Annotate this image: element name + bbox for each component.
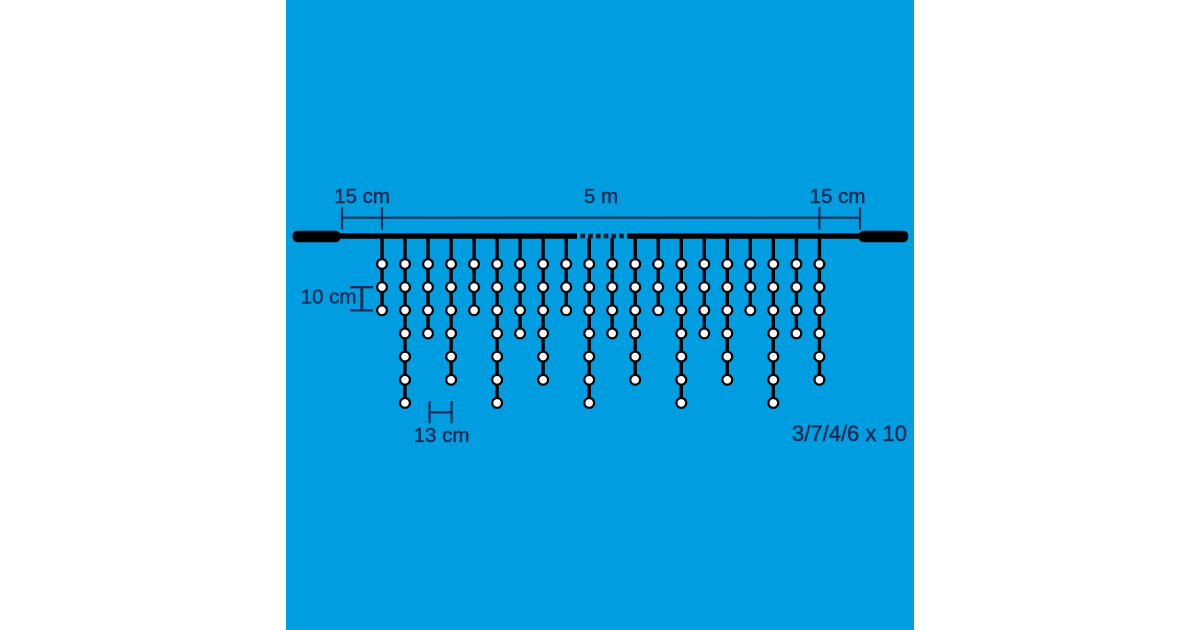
svg-text:10 cm: 10 cm bbox=[301, 286, 357, 309]
svg-text:5 m: 5 m bbox=[584, 185, 618, 208]
svg-text:13 cm: 13 cm bbox=[414, 424, 470, 447]
svg-text:15 cm: 15 cm bbox=[810, 185, 866, 208]
svg-text:3/7/4/6 x 10: 3/7/4/6 x 10 bbox=[792, 421, 907, 446]
svg-text:15 cm: 15 cm bbox=[334, 185, 390, 208]
